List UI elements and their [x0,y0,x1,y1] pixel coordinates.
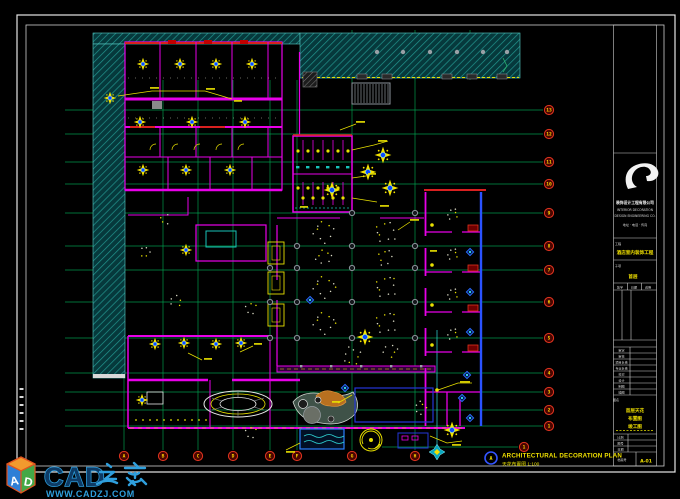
stair [352,83,390,104]
project-name: 酒店室内装饰工程 [617,249,654,256]
diamond-icon [306,296,313,303]
star9-icon [382,180,399,197]
node-icon [412,265,417,270]
grid-bubble-label: 9 [548,211,551,217]
drawing-subtitle: 天花布置图 1:100 [502,461,540,468]
fan-icon [210,58,222,70]
fan-window [360,429,382,451]
band-cap [93,374,125,378]
grid-bubble-label: C [197,454,200,460]
fan-icon [235,337,247,349]
node-icon [412,210,417,215]
node-icon [349,299,354,304]
fan-icon [136,394,148,406]
meta-row-label: 比例 [617,434,623,439]
node-icon [349,243,354,248]
meta-row-label: 图号 [617,440,623,445]
star9-icon [375,147,392,164]
pool [300,429,344,449]
firm-logo [626,163,659,189]
hatch-band-top [300,33,520,78]
watermark-cube-logo: A D [7,457,35,493]
fan-icon [178,337,190,349]
binding-strip [20,388,24,430]
project-label: 工程 [615,241,621,246]
staff-row-label: 校对 [618,371,624,376]
grid-bubble-label: 3 [548,390,551,396]
grid-bubble-label: B [162,454,165,460]
node-icon [267,299,272,304]
fan-icon [180,164,192,176]
staff-row-label: 描图 [618,389,624,394]
cad-canvas: 13121110987654321ABCDEFGH1 [0,0,680,499]
reception-desk [204,391,272,417]
grid-bubble-label: 5 [548,336,551,342]
grid-bubble-label: 10 [546,182,552,188]
fan-icon [224,164,236,176]
node-icon [412,299,417,304]
diamond-icon [466,328,473,335]
diamond-icon [463,371,470,378]
grid-bubble-label: 1 [523,445,526,451]
fan-icon [137,164,149,176]
grid-bubble-label: 1 [548,424,551,430]
firm-line: DESIGN ENGINEERING CO. [615,214,656,218]
grid-bubble-label: D [232,454,235,460]
fan-icon [137,58,149,70]
title-block: 装饰设计工程有限公司 INTERIOR DECORATION DESIGN EN… [613,25,658,466]
grid-bubble-label: 4 [548,371,551,377]
grid-bubble-label: 11 [546,160,552,166]
rooms-mid-left [128,197,266,261]
grid-bubble-label: H [414,454,417,460]
grid-nodes [267,210,417,340]
meta-row-label: 日期 [617,446,623,451]
grid-bubble-label: 8 [548,244,551,250]
staff-row-label: 专业负责 [615,365,627,370]
drawing-annotation: A ARCHITECTURAL DECORATION PLAN 天花布置图 1:… [485,452,622,468]
star9-icon [360,164,377,181]
rooms-top-left [125,40,282,190]
floor-plan [93,33,520,460]
grid-bubble-label: 12 [546,132,552,138]
detail-marker-text: A [489,456,492,462]
grid-bubble-label: 2 [548,408,551,414]
node-icon [267,335,272,340]
node-icon [349,265,354,270]
grid-bubble-label: E [269,454,272,460]
central-halls [268,218,435,372]
staff-row-label: 制图 [618,383,624,388]
fan-icon [210,338,222,350]
node-icon [412,243,417,248]
cad-drawing-viewport: 13121110987654321ABCDEFGH1 [0,0,680,499]
diamond-icon [466,414,473,421]
firm-line: INTERIOR DECORATION [617,208,654,212]
drawing-name-2: 布置图 [628,415,642,422]
star9-icon [444,422,461,439]
node-icon [294,299,299,304]
firm-name: 装饰设计工程有限公司 [615,200,654,205]
north-star-icon [429,444,445,460]
staff-row-label: 审核 [618,353,624,358]
node-icon [294,243,299,248]
firm-line: 地址 · 电话 · 传真 [623,222,647,227]
drawing-label: 图名 [613,397,619,402]
water-feature [293,391,358,424]
diamond-icon [466,288,473,295]
grid-bubble-label: 13 [546,108,552,114]
sheet-number: A-01 [640,459,652,465]
drawing-title: ARCHITECTURAL DECORATION PLAN [502,453,622,460]
star9-icon [357,329,374,346]
drawing-note: 竣工图 [628,423,642,430]
grid-bubble-label: G [351,454,354,460]
watermark-url: WWW.CADZJ.COM [46,489,135,499]
cube-letter-d: D [23,474,34,489]
subitem-label: 子项 [615,263,621,268]
node-icon [412,335,417,340]
subitem-name: 首层 [628,273,638,280]
washrooms [293,135,352,212]
staff-row-label: 项目负责 [615,359,627,364]
node-icon [349,210,354,215]
drawing-name-1: 首层天花 [626,407,645,414]
grid-bubble-label: 6 [548,300,551,306]
fan-icon [246,58,258,70]
hatch-band-left [93,44,125,378]
approval-cell-label: 签字 [617,284,623,289]
node-icon [294,335,299,340]
approval-cell-label: 日期 [631,284,637,289]
staff-row-label: 设计 [618,377,624,382]
fan-icon [174,58,186,70]
diamond-icon [466,248,473,255]
fan-icon [149,338,161,350]
approval-cell-label: 说明 [645,284,651,289]
watermark-brand-latin: CAD [44,462,106,492]
node-icon [294,265,299,270]
grid-bubble-label: 7 [548,268,551,274]
node-icon [267,265,272,270]
node-icon [349,335,354,340]
grid-bubble-label: F [296,454,299,460]
staff-row-label: 审定 [618,347,624,352]
diamond-icon [341,384,348,391]
watermark: A D CAD WWW.CADZJ.COM [1,453,161,499]
bottom-strip [128,336,465,451]
